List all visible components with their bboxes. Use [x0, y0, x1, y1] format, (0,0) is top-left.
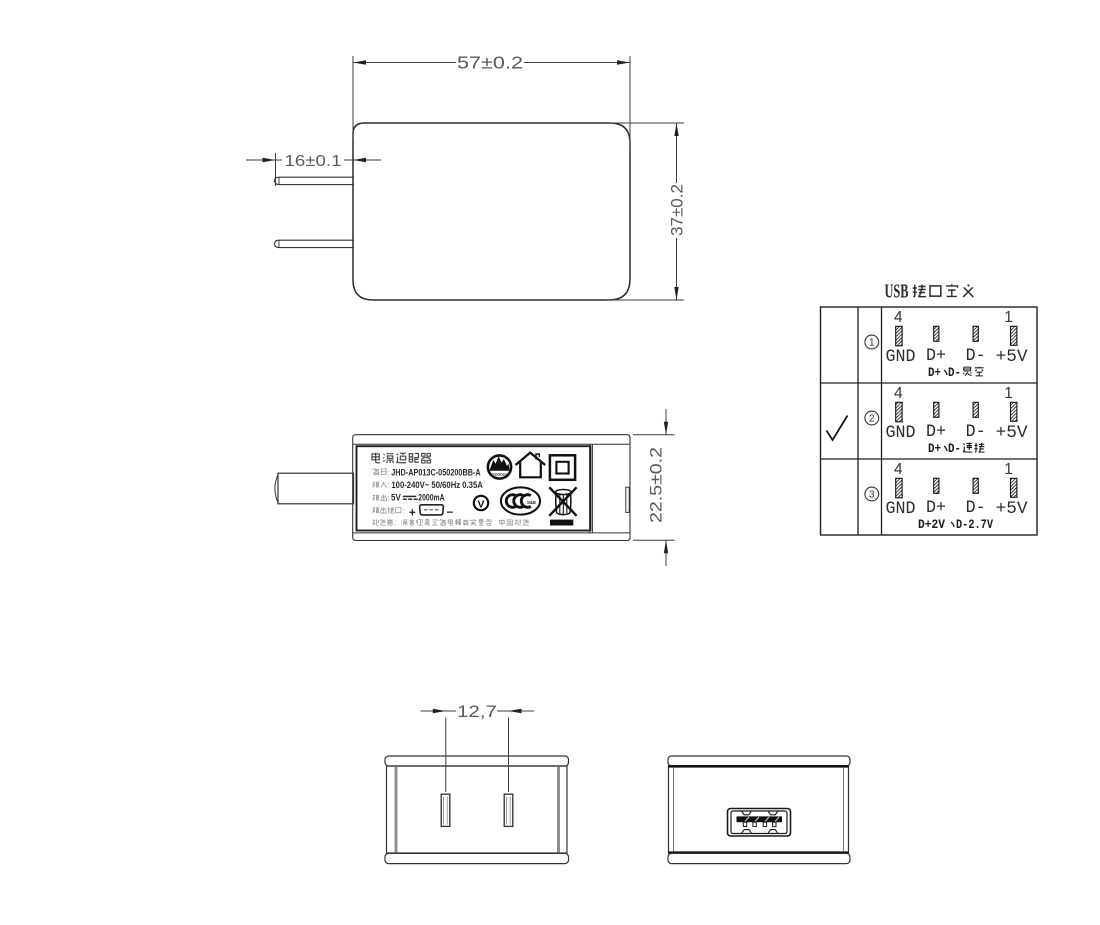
svg-text:GND: GND	[886, 423, 916, 443]
svg-text:2: 2	[869, 414, 875, 425]
svg-text:−: −	[447, 507, 454, 519]
svg-text:2000m: 2000m	[492, 472, 507, 478]
svg-text:GND: GND	[886, 499, 916, 519]
svg-text::: :	[388, 480, 390, 490]
svg-text::: :	[403, 506, 405, 516]
svg-text:22.5±0.2: 22.5±0.2	[648, 447, 666, 523]
svg-text:USB: USB	[885, 281, 909, 303]
svg-text::: :	[388, 492, 390, 502]
svg-text:+5V: +5V	[996, 499, 1028, 519]
svg-text:1: 1	[869, 338, 875, 349]
svg-text:5V: 5V	[391, 493, 401, 504]
svg-text:4: 4	[894, 309, 903, 326]
svg-text:D-: D-	[966, 346, 986, 366]
svg-text:+5V: +5V	[996, 423, 1028, 443]
svg-text::: :	[394, 518, 396, 527]
svg-text:V: V	[477, 498, 484, 510]
svg-text:S&E: S&E	[527, 500, 536, 505]
svg-text:D+: D+	[926, 422, 946, 442]
svg-text:4: 4	[894, 461, 903, 478]
svg-text:D+: D+	[926, 498, 946, 518]
svg-text:D-: D-	[948, 366, 961, 380]
svg-text:12,7: 12,7	[457, 703, 497, 721]
svg-text:100-240V~ 50/60Hz 0.35A: 100-240V~ 50/60Hz 0.35A	[391, 480, 482, 491]
svg-text:D+: D+	[928, 442, 941, 456]
svg-text:D-: D-	[966, 498, 986, 518]
svg-text:D+: D+	[928, 366, 941, 380]
svg-text:D-: D-	[948, 442, 961, 456]
svg-text:1: 1	[1004, 309, 1013, 326]
svg-text:+5V: +5V	[996, 347, 1028, 367]
svg-text:3: 3	[869, 490, 875, 501]
svg-text:D-: D-	[966, 422, 986, 442]
svg-text:1: 1	[1004, 385, 1013, 402]
svg-text:57±0.2: 57±0.2	[457, 53, 523, 73]
svg-text:1: 1	[1004, 461, 1013, 478]
svg-text:37±0.2: 37±0.2	[668, 184, 687, 236]
svg-text:4: 4	[894, 385, 903, 402]
svg-text:2000mA: 2000mA	[418, 493, 444, 504]
svg-text:+: +	[409, 508, 416, 520]
svg-text:JHD-AP013C-050200BB-A: JHD-AP013C-050200BB-A	[391, 468, 481, 479]
svg-text::: :	[388, 467, 390, 477]
svg-text:D-2.7V: D-2.7V	[956, 518, 993, 532]
svg-text:D+: D+	[926, 346, 946, 366]
svg-text:16±0.1: 16±0.1	[285, 153, 342, 170]
svg-text:D+2V: D+2V	[918, 518, 945, 532]
svg-text:GND: GND	[886, 347, 916, 367]
